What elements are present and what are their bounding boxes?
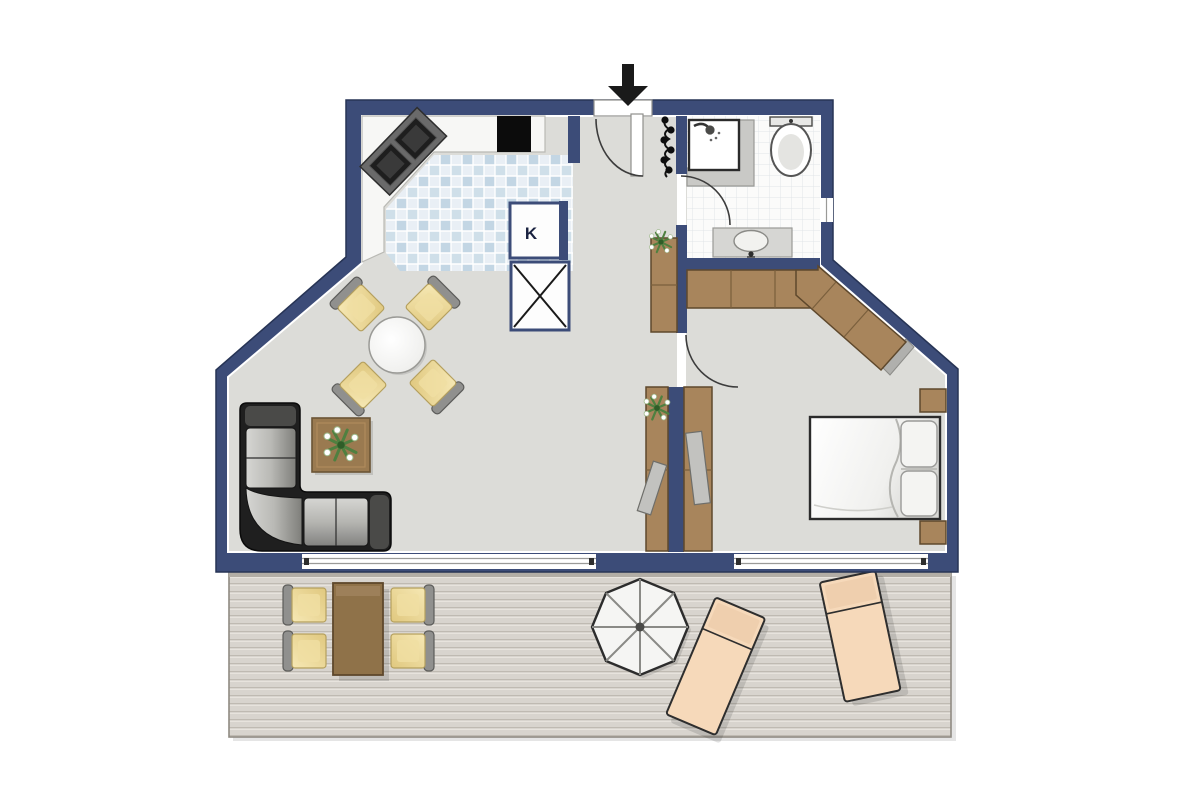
window (302, 554, 596, 569)
nightstand (920, 389, 946, 412)
washbasin-icon (713, 228, 792, 257)
coffee-table (312, 418, 373, 475)
terrace-chair (283, 585, 326, 625)
terrace-chair (283, 631, 326, 671)
toilet-icon (770, 117, 812, 176)
cooktop-sink-icon (497, 116, 531, 152)
interior-wall (568, 116, 580, 163)
terrace-chair (391, 631, 434, 671)
fridge-box: K (510, 201, 568, 260)
storage-box (511, 262, 569, 330)
interior-wall (676, 116, 687, 174)
dining-table (369, 317, 427, 375)
terrace-table (333, 583, 389, 681)
terrace-chair (391, 585, 434, 625)
fridge-label: K (525, 224, 538, 243)
interior-wall (668, 387, 684, 552)
shower-icon (687, 120, 754, 186)
double-bed (810, 417, 940, 519)
floor-plan-drawing: K (0, 0, 1200, 800)
interior-wall (676, 258, 820, 270)
window (734, 554, 928, 569)
nightstand (920, 521, 946, 544)
window (820, 198, 833, 222)
floor-plan-canvas: K (0, 0, 1200, 800)
